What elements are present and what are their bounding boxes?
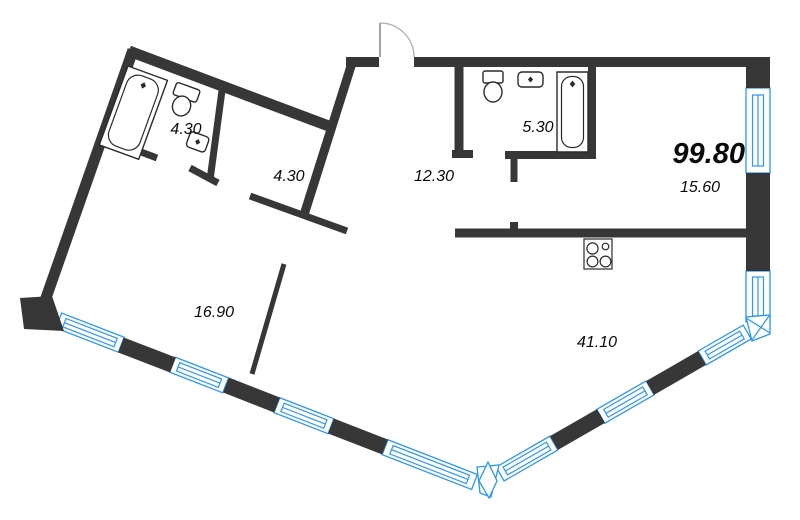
toilet-icon [483,71,503,102]
room-area-label-entrance-hall: 12.30 [414,168,454,185]
toilet-icon [166,82,200,120]
entrance-door [380,23,414,57]
room-area-label-kitchen-area: 15.60 [680,179,720,196]
wall-pier [226,385,277,405]
room-area-label-living-area: 41.10 [577,334,617,351]
room-area-label-hallway: 4.30 [273,168,304,185]
wall-pier [554,416,601,443]
room-area-label-bathroom-top-left: 4.30 [170,121,201,138]
wall-pier [121,345,173,365]
wall-hallway-bottom [250,196,347,231]
window-segment [56,313,124,352]
window-segment [170,357,229,393]
corner-block-top-right [746,57,770,88]
door-swing-arc [380,23,414,57]
corner-block-bottom-left [20,296,64,331]
wall-room-divider [252,264,284,374]
wall-pier [331,426,385,447]
floor-plan-canvas: 4.30 4.30 12.30 5.30 99.80 15.60 16.90 4… [0,0,800,520]
window-segment [746,88,770,173]
window-segment [746,271,770,322]
window-segment [698,325,751,365]
sink-icon [518,72,543,87]
floor-plan-drawing: 4.30 4.30 12.30 5.30 99.80 15.60 16.90 4… [0,0,800,520]
window-segment [597,381,654,423]
wall-entry-diagonal [303,63,352,218]
room-area-label-room-left: 16.90 [194,304,234,321]
window-segment [382,440,477,490]
total-area-label: 99.80 [672,138,745,170]
room-area-label-bathroom-top-right: 5.30 [522,119,553,136]
window-vertex-joint [477,462,499,498]
wall-pier [650,358,702,388]
window-segment [496,436,558,481]
stove-icon [584,239,612,269]
wall-bathroom1-right [210,83,223,180]
window-segment [274,398,334,434]
bathtub-icon [557,72,588,152]
